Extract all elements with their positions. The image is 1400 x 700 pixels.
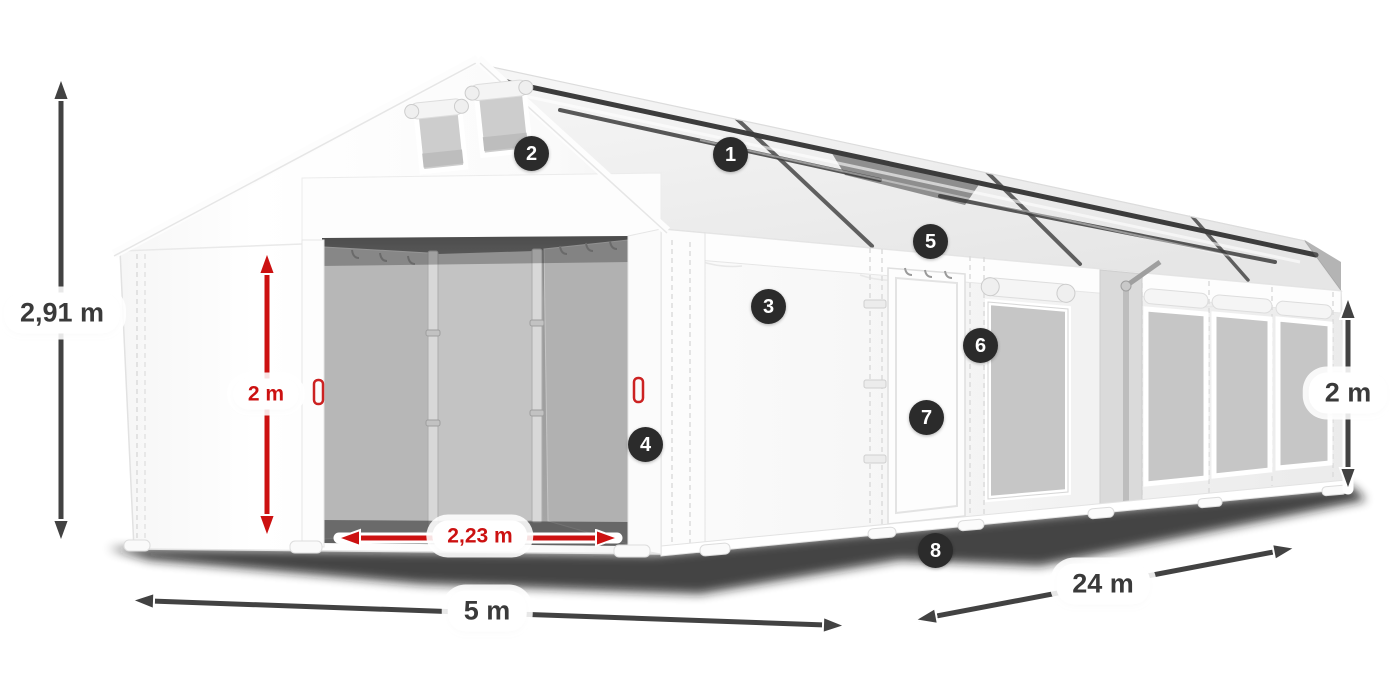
feature-marker-8: 8 <box>918 533 953 568</box>
dimension-label-total-height: 2,91 m <box>4 293 120 334</box>
inner-mesh-right <box>544 240 628 544</box>
side-window-2 <box>1144 288 1209 484</box>
dimension-label-length: 24 m <box>1056 564 1150 605</box>
feature-marker-4: 4 <box>628 427 663 462</box>
tent-dimension-diagram: 2,91 m 2 m 2,23 m 5 m 24 m 2 m 1 2 3 4 5… <box>0 0 1400 700</box>
dimension-label-entrance-width: 2,23 m <box>432 521 527 552</box>
inner-mesh-left <box>324 247 434 539</box>
dimension-label-width: 5 m <box>448 591 527 632</box>
side-window-3 <box>1212 294 1273 476</box>
feature-marker-3: 3 <box>751 289 786 324</box>
dimension-label-side-height: 2 m <box>1309 373 1388 414</box>
feature-marker-6: 6 <box>963 328 998 363</box>
side-door <box>888 268 965 524</box>
feature-marker-7: 7 <box>909 400 944 435</box>
dimension-label-clear-height: 2 m <box>233 379 299 410</box>
feature-marker-2: 2 <box>514 136 549 171</box>
entrance-opening <box>322 236 630 546</box>
side-window-1 <box>980 277 1075 499</box>
tent-illustration <box>0 0 1400 700</box>
feature-marker-1: 1 <box>713 137 748 172</box>
feature-marker-5: 5 <box>913 224 948 259</box>
